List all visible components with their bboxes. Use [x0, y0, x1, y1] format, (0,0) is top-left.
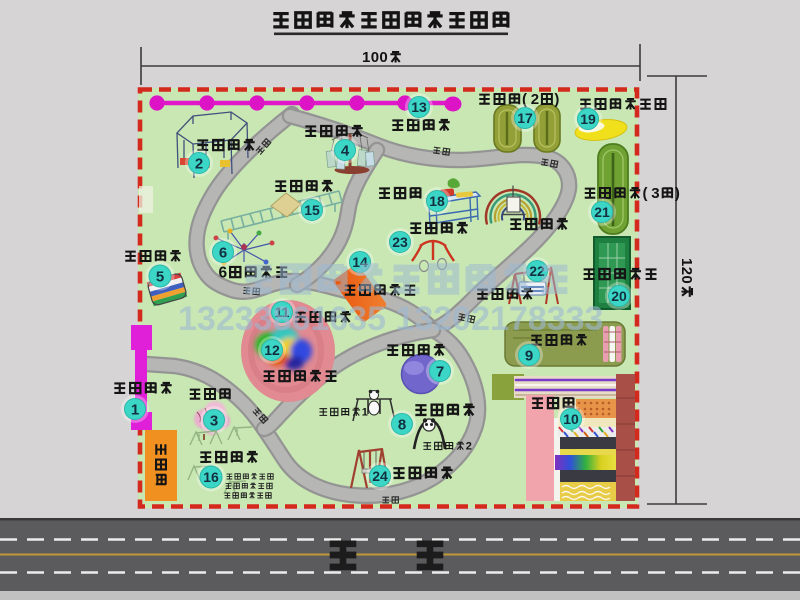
svg-text:12: 12 — [264, 342, 280, 358]
svg-text:2: 2 — [678, 267, 695, 275]
svg-text:1: 1 — [362, 407, 368, 419]
svg-text:13233861635 13202178333: 13233861635 13202178333 — [178, 300, 603, 338]
svg-text:2: 2 — [531, 91, 539, 108]
svg-text:2: 2 — [195, 155, 203, 172]
svg-text:20: 20 — [611, 288, 627, 304]
svg-text:6: 6 — [219, 264, 228, 281]
svg-text:16: 16 — [203, 469, 219, 485]
svg-text:8: 8 — [398, 416, 406, 433]
svg-text:17: 17 — [517, 110, 533, 126]
svg-text:): ) — [554, 91, 559, 108]
svg-text:21: 21 — [594, 204, 610, 220]
svg-text:6: 6 — [219, 244, 227, 261]
svg-text:3: 3 — [210, 412, 218, 429]
svg-text:3: 3 — [651, 185, 659, 202]
svg-text:1: 1 — [131, 401, 139, 418]
svg-text:23: 23 — [392, 234, 408, 250]
svg-text:): ) — [675, 185, 680, 202]
svg-text:2: 2 — [466, 441, 472, 453]
svg-text:0: 0 — [371, 49, 379, 66]
svg-text:10: 10 — [563, 411, 579, 427]
svg-text:4: 4 — [341, 142, 350, 159]
svg-text:1: 1 — [362, 49, 370, 66]
svg-text:5: 5 — [156, 268, 164, 285]
svg-text:0: 0 — [379, 49, 387, 66]
svg-text:7: 7 — [436, 363, 444, 380]
svg-text:13: 13 — [411, 99, 427, 115]
svg-text:18: 18 — [429, 193, 445, 209]
svg-text:0: 0 — [678, 275, 695, 283]
svg-text:9: 9 — [525, 347, 533, 364]
svg-text:15: 15 — [304, 202, 320, 218]
svg-text:(: ( — [643, 185, 648, 202]
svg-text:19: 19 — [580, 111, 596, 127]
svg-text:1: 1 — [678, 258, 695, 266]
svg-text:24: 24 — [372, 468, 388, 484]
